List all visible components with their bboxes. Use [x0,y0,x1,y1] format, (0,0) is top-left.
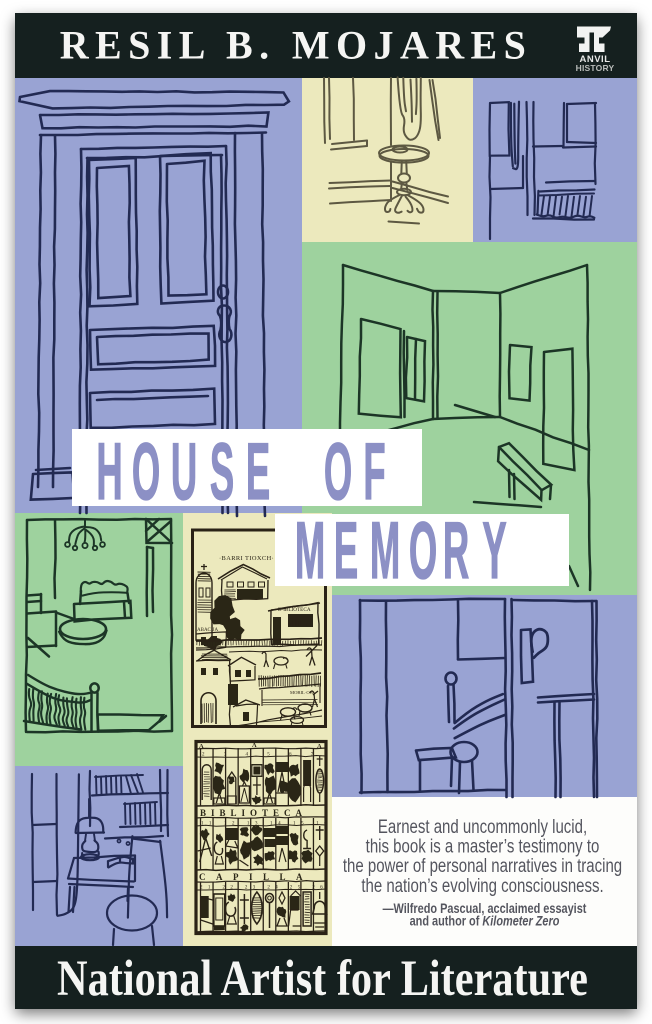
svg-text:E: E [246,427,270,517]
svg-text:E: E [334,506,358,596]
svg-text:O: O [132,427,160,517]
svg-text:A: A [317,743,322,750]
svg-text:BIBLIOTECA: BIBLIOTECA [200,808,307,818]
svg-text:F: F [363,427,385,517]
svg-text:the power of personal narrativ: the power of personal narratives in trac… [343,856,622,877]
svg-text:HISTORY: HISTORY [576,63,615,73]
svg-text:B·IBLIOTECA: B·IBLIOTECA [278,607,311,613]
svg-text:M: M [370,506,400,596]
svg-text:U: U [171,427,197,517]
svg-text:O: O [324,427,352,517]
svg-text:O: O [409,506,437,596]
svg-text:Y: Y [482,506,506,596]
svg-text:and author of Kilometer Zero: and author of Kilometer Zero [410,914,560,929]
svg-text:H: H [96,427,122,517]
svg-text:CAPILLA: CAPILLA [199,872,313,882]
svg-text:Λ: Λ [252,742,257,749]
svg-text:the nation’s evolving consciou: the nation’s evolving consciousness. [361,875,603,896]
svg-text:·BARRI TIOXCH·: ·BARRI TIOXCH· [219,555,274,562]
svg-text:S: S [210,427,234,517]
svg-text:A: A [199,743,204,750]
svg-text:RESIL B. MOJARES: RESIL B. MOJARES [60,23,533,68]
svg-text:this book is a master’s testim: this book is a master’s testimony to [366,836,600,857]
svg-text:R: R [443,506,469,596]
svg-text:National Artist for Literature: National Artist for Literature [57,950,588,1007]
svg-text:M: M [295,506,325,596]
svg-text:Earnest and uncommonly lucid,: Earnest and uncommonly lucid, [378,816,587,837]
